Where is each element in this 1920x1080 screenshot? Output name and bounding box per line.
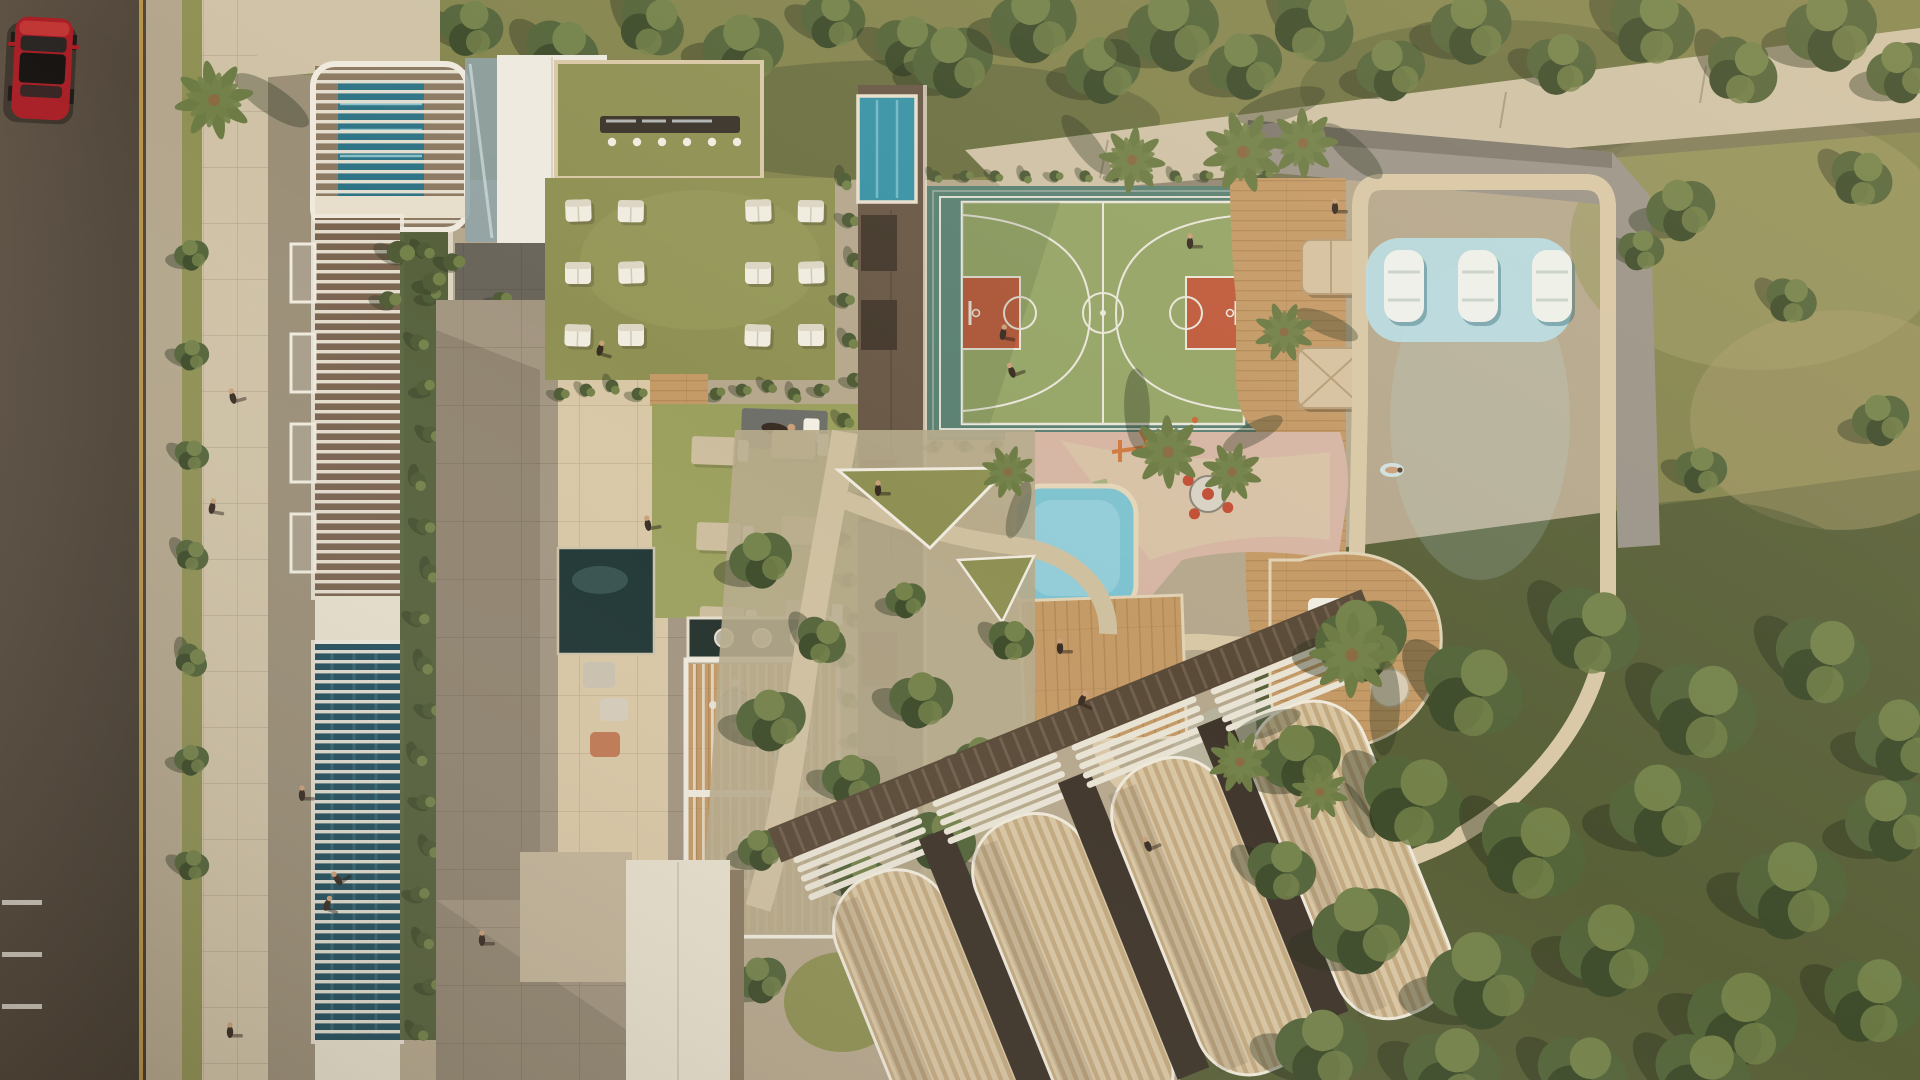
screenshot-root: [0, 0, 1920, 1080]
sunlight-overlay: [0, 0, 1920, 1080]
aerial-render-canvas: [0, 0, 1920, 1080]
